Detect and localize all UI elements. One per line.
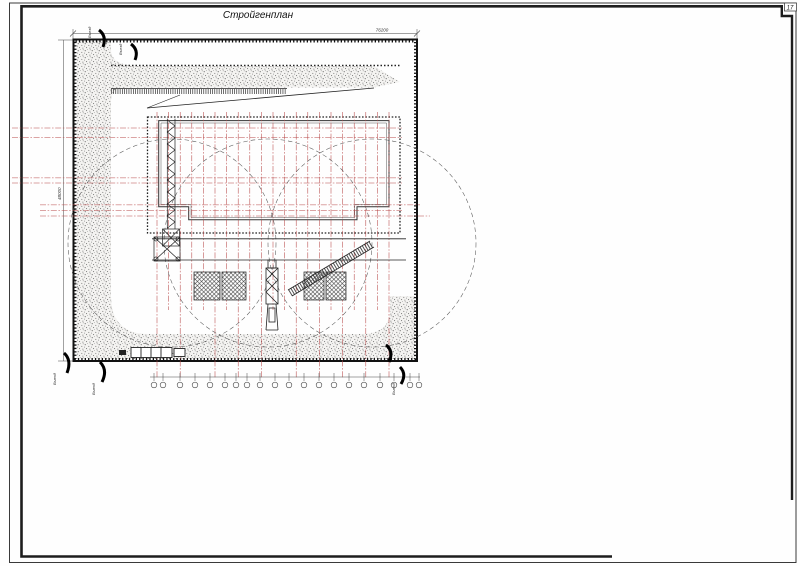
- svg-text:48000: 48000: [57, 187, 62, 200]
- svg-text:76200: 76200: [376, 28, 389, 33]
- svg-text:Въезд: Въезд: [118, 43, 123, 55]
- svg-text:Стройгенплан: Стройгенплан: [223, 10, 294, 21]
- svg-text:Выезд: Выезд: [391, 382, 396, 395]
- svg-text:17: 17: [787, 6, 794, 12]
- svg-text:Выезд: Выезд: [52, 372, 57, 385]
- svg-text:Въезд: Въезд: [87, 26, 92, 38]
- svg-text:Выезд: Выезд: [91, 382, 96, 395]
